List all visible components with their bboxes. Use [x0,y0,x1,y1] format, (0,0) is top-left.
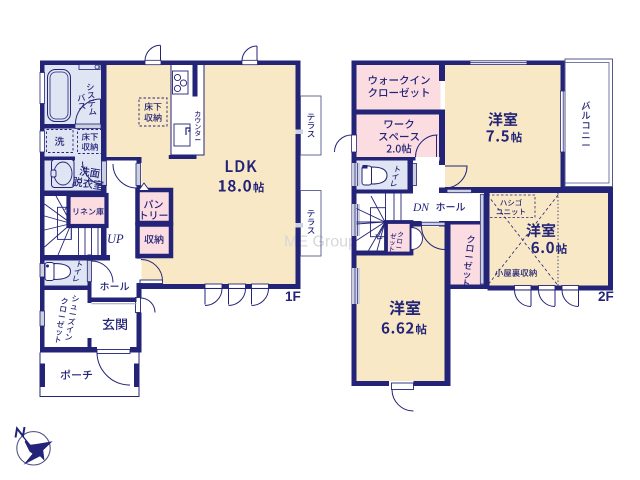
svg-text:ME Group: ME Group [284,234,357,251]
svg-text:2F: 2F [598,289,614,304]
svg-text:UP: UP [107,232,124,246]
svg-text:DN: DN [412,202,430,214]
svg-text:1F: 1F [285,289,301,304]
